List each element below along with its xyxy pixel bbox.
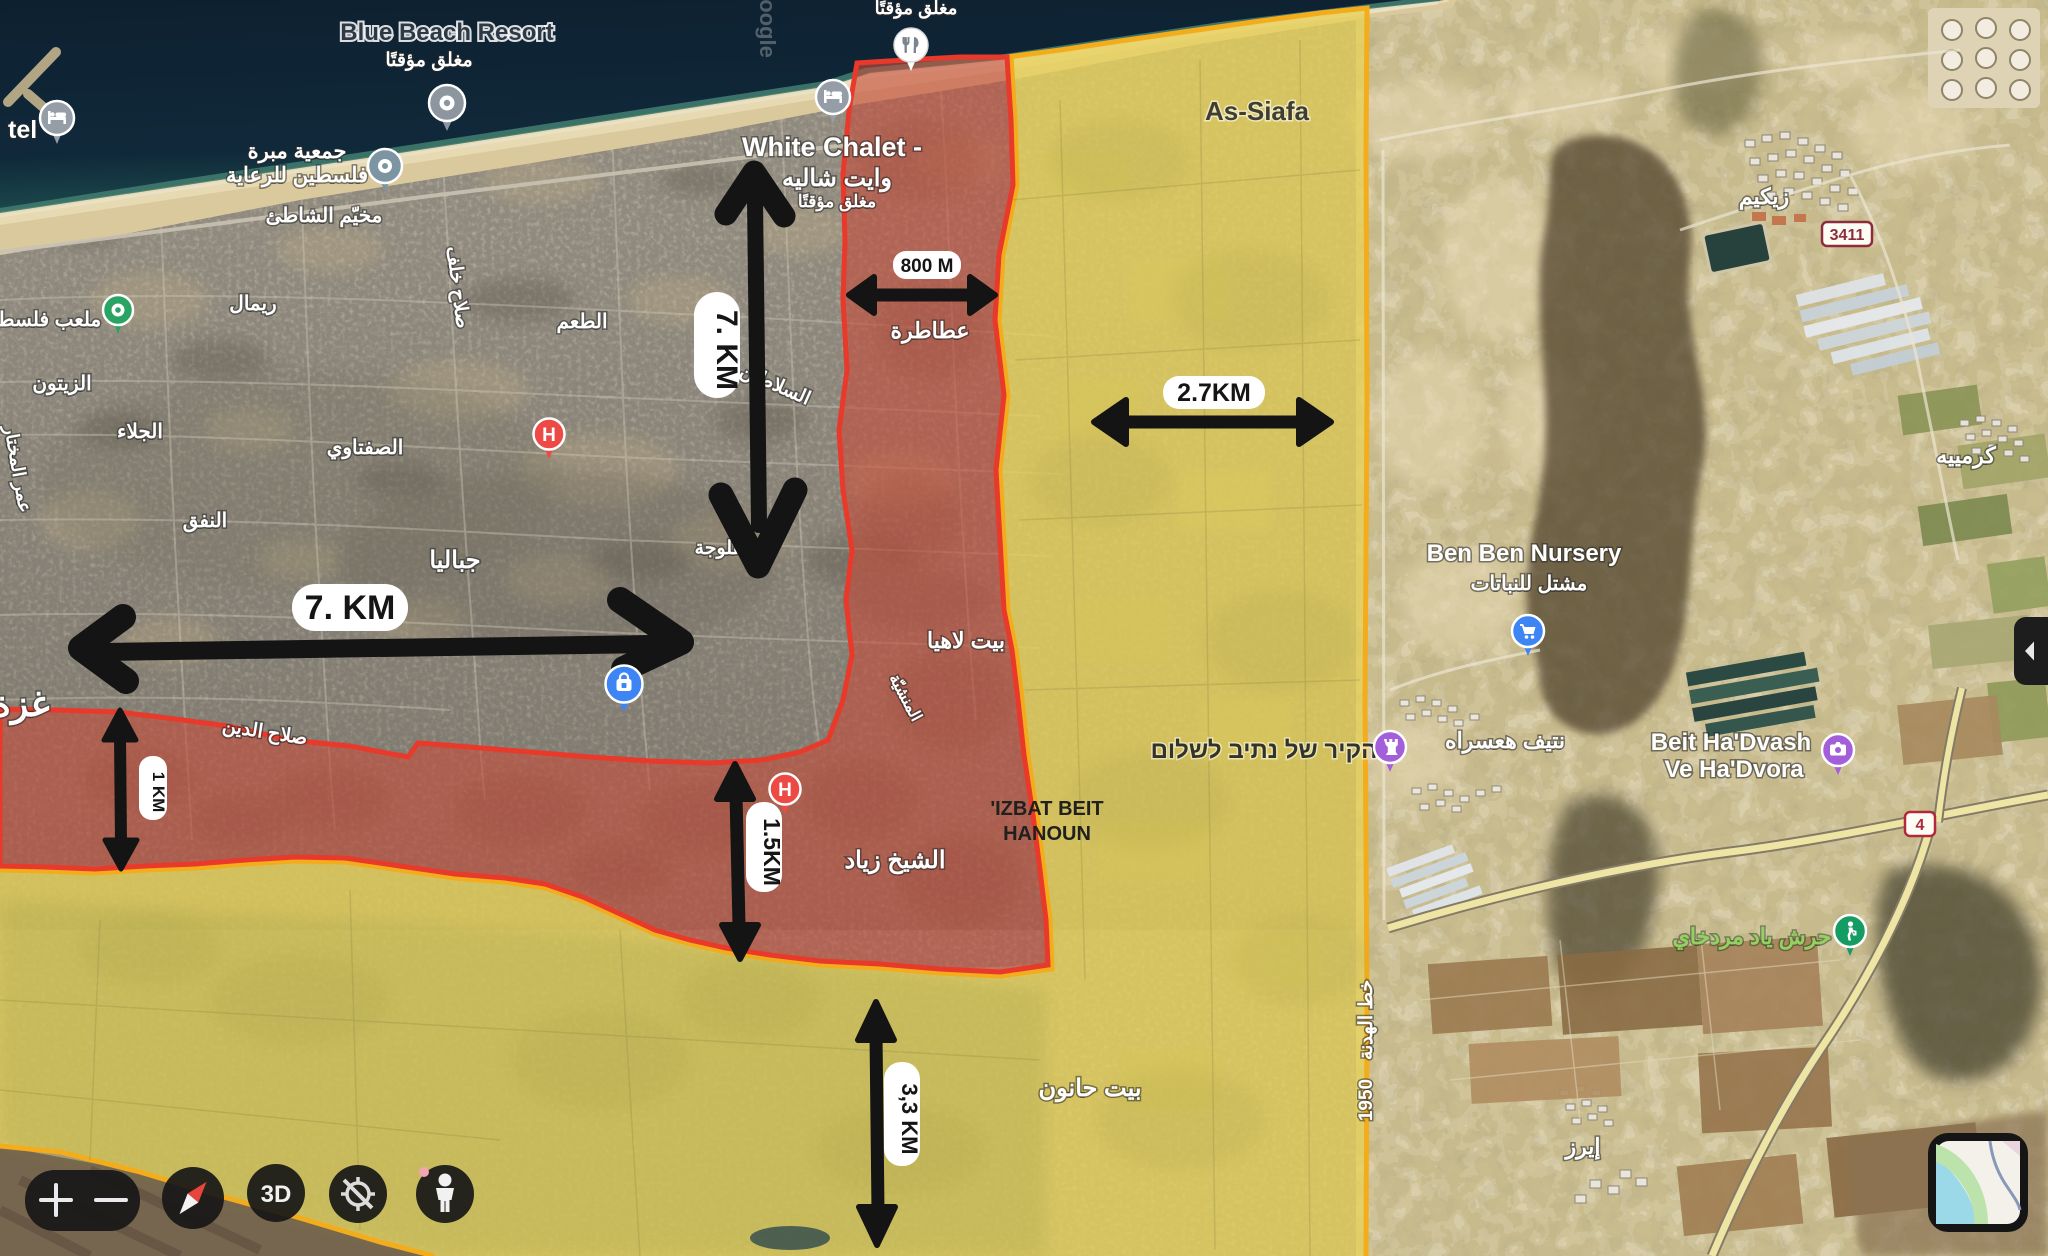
svg-text:H: H — [542, 425, 556, 446]
svg-text:1 KM: 1 KM — [149, 772, 168, 813]
svg-text:Google: Google — [755, 0, 780, 58]
svg-text:800 M: 800 M — [901, 256, 954, 277]
svg-text:As-Siafa: As-Siafa — [1205, 96, 1310, 126]
svg-text:Ben Ben Nursery: Ben Ben Nursery — [1427, 540, 1622, 567]
svg-text:الطعم: الطعم — [556, 311, 607, 334]
svg-text:جباليا: جباليا — [429, 547, 480, 574]
svg-text:فلسطين للرعاية: فلسطين للرعاية — [226, 164, 368, 188]
svg-text:ملعب فلسط: ملعب فلسط — [0, 309, 101, 331]
svg-text:مغلق مؤقتًا: مغلق مؤقتًا — [385, 50, 472, 71]
svg-text:خط الهدنة: خط الهدنة — [1356, 980, 1377, 1060]
svg-text:Beit Ha'Dvash: Beit Ha'Dvash — [1651, 729, 1811, 756]
svg-text:مغلق مؤقتًا: مغلق مؤقتًا — [798, 192, 876, 212]
svg-text:بيت حانون: بيت حانون — [1038, 1075, 1141, 1103]
svg-text:Blue Beach Resort: Blue Beach Resort — [340, 19, 553, 46]
svg-text:7. KM: 7. KM — [710, 310, 743, 390]
svg-text:مغلق مؤقتًا: مغلق مؤقتًا — [875, 0, 958, 19]
svg-text:زيكيم: زيكيم — [1739, 184, 1789, 210]
svg-text:H: H — [778, 780, 792, 801]
svg-text:حرش ياد مردخاي: حرش ياد مردخاي — [1673, 924, 1832, 950]
svg-text:الجلاء: الجلاء — [117, 421, 163, 443]
svg-text:White Chalet -: White Chalet - — [742, 132, 922, 162]
svg-text:HANOUN: HANOUN — [1003, 823, 1091, 845]
svg-text:الصفتاوي: الصفتاوي — [327, 437, 404, 460]
svg-text:1.5KM: 1.5KM — [759, 818, 785, 886]
svg-text:النفق: النفق — [183, 510, 227, 533]
svg-text:3411: 3411 — [1830, 227, 1865, 244]
svg-text:بيت لاهيا: بيت لاهيا — [927, 628, 1005, 653]
svg-text:غزة: غزة — [0, 683, 50, 726]
svg-text:وايت شاليه: وايت شاليه — [782, 165, 892, 193]
svg-text:مشتل للنباتات: مشتل للنباتات — [1471, 573, 1588, 595]
svg-text:جمعية مبرة: جمعية مبرة — [248, 140, 347, 164]
svg-text:3,3 KM: 3,3 KM — [897, 1084, 922, 1155]
svg-text:ريمال: ريمال — [229, 293, 276, 316]
svg-text:2.7KM: 2.7KM — [1177, 379, 1251, 407]
svg-text:'IZBAT BEIT: 'IZBAT BEIT — [990, 798, 1103, 820]
svg-text:הקיר של נתיב לשלום: הקיר של נתיב לשלום — [1151, 737, 1378, 764]
svg-text:7. KM: 7. KM — [305, 589, 396, 627]
svg-text:4: 4 — [1916, 817, 1925, 834]
svg-text:الزيتون: الزيتون — [32, 373, 91, 396]
svg-text:tel: tel — [8, 116, 37, 144]
svg-text:1950: 1950 — [1356, 1079, 1377, 1121]
svg-text:3D: 3D — [261, 1181, 292, 1208]
svg-text:عطاطرة: عطاطرة — [890, 318, 969, 344]
svg-text:إيرز: إيرز — [1564, 1134, 1601, 1161]
svg-text:الشيخ زياد: الشيخ زياد — [844, 847, 945, 875]
svg-text:نتيف هعسراه: نتيف هعسراه — [1445, 728, 1565, 754]
svg-text:Ve Ha'Dvora: Ve Ha'Dvora — [1664, 756, 1804, 783]
svg-text:مخيّم الشاطئ: مخيّم الشاطئ — [266, 205, 383, 228]
svg-text:كرمييه: كرمييه — [1936, 443, 1996, 469]
